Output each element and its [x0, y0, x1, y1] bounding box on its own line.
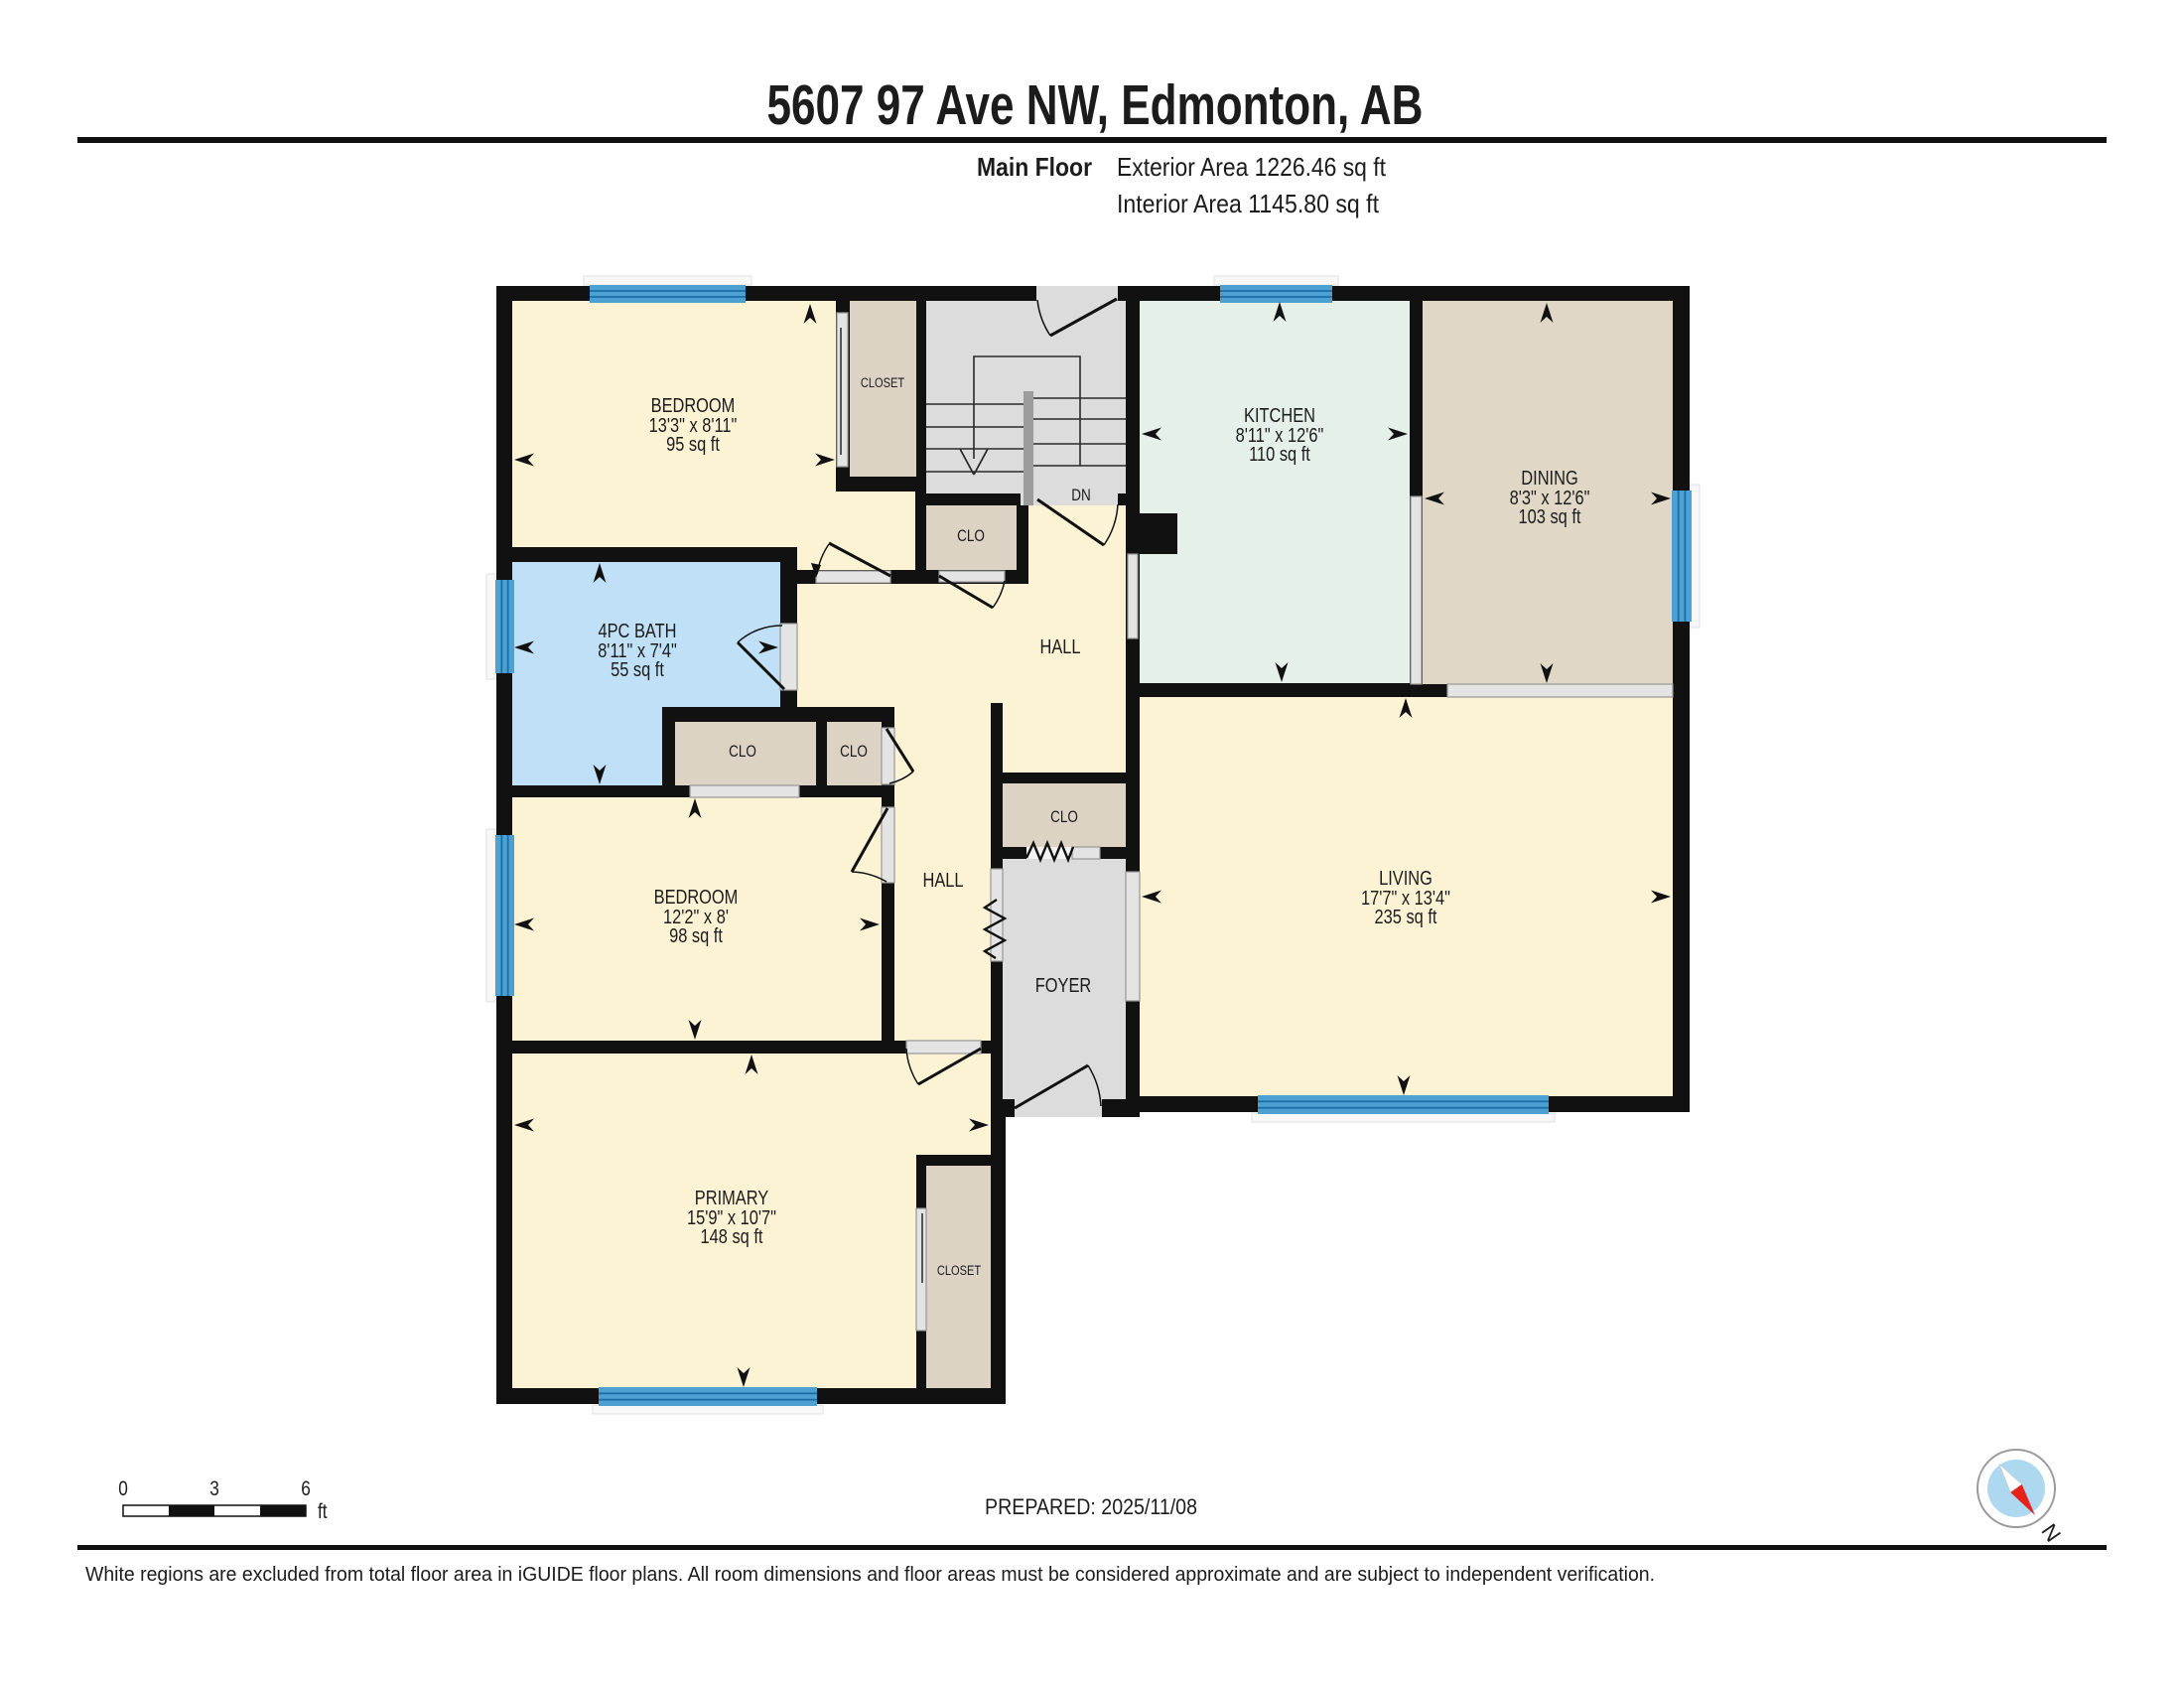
- svg-text:0: 0: [118, 1477, 128, 1500]
- svg-text:HALL: HALL: [923, 870, 964, 892]
- svg-text:235 sq ft: 235 sq ft: [1375, 907, 1437, 928]
- svg-text:BEDROOM: BEDROOM: [651, 395, 736, 417]
- svg-text:148 sq ft: 148 sq ft: [701, 1226, 763, 1248]
- svg-text:CLO: CLO: [840, 743, 868, 761]
- svg-text:DN: DN: [1071, 487, 1091, 504]
- svg-text:55 sq ft: 55 sq ft: [611, 659, 664, 681]
- svg-text:PREPARED: 2025/11/08: PREPARED: 2025/11/08: [985, 1494, 1197, 1519]
- svg-text:KITCHEN: KITCHEN: [1244, 405, 1315, 427]
- svg-text:Main Floor: Main Floor: [977, 152, 1092, 182]
- svg-text:6: 6: [301, 1477, 311, 1500]
- svg-text:BEDROOM: BEDROOM: [654, 887, 739, 909]
- svg-text:DINING: DINING: [1521, 468, 1577, 490]
- svg-text:CLOSET: CLOSET: [937, 1263, 981, 1278]
- svg-text:CLO: CLO: [729, 743, 756, 761]
- svg-text:FOYER: FOYER: [1035, 975, 1092, 997]
- svg-text:CLO: CLO: [1050, 808, 1078, 826]
- svg-text:White regions are excluded fro: White regions are excluded from total fl…: [85, 1563, 1655, 1586]
- svg-text:3: 3: [209, 1477, 219, 1500]
- svg-text:HALL: HALL: [1040, 636, 1081, 658]
- svg-text:CLOSET: CLOSET: [861, 375, 904, 390]
- svg-text:Exterior Area 1226.46 sq ft: Exterior Area 1226.46 sq ft: [1117, 152, 1387, 182]
- svg-text:CLO: CLO: [957, 527, 985, 545]
- svg-text:Interior Area 1145.80 sq ft: Interior Area 1145.80 sq ft: [1117, 189, 1380, 218]
- svg-text:4PC BATH: 4PC BATH: [599, 621, 677, 642]
- svg-text:PRIMARY: PRIMARY: [695, 1188, 768, 1209]
- svg-text:ft: ft: [318, 1500, 328, 1523]
- svg-text:98 sq ft: 98 sq ft: [669, 925, 723, 947]
- svg-text:LIVING: LIVING: [1379, 868, 1433, 890]
- svg-text:5607 97 Ave NW, Edmonton, AB: 5607 97 Ave NW, Edmonton, AB: [767, 73, 1424, 137]
- svg-text:110 sq ft: 110 sq ft: [1249, 444, 1310, 466]
- svg-text:95 sq ft: 95 sq ft: [666, 434, 720, 456]
- svg-text:103 sq ft: 103 sq ft: [1519, 506, 1581, 528]
